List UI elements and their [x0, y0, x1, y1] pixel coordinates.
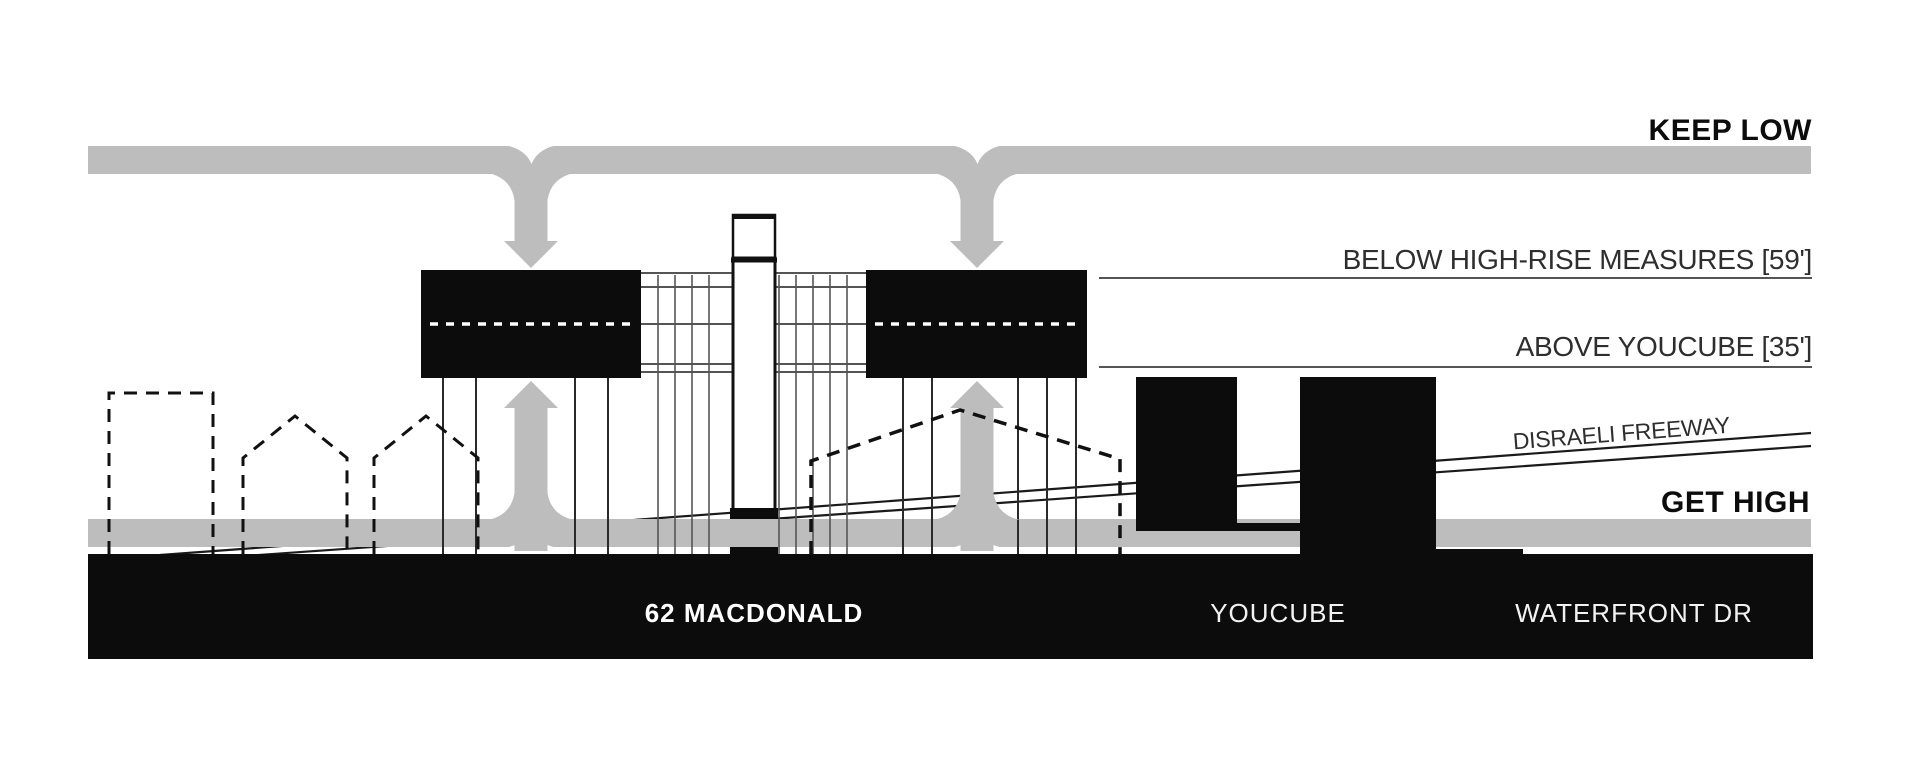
youcube-label: YOUCUBE [1210, 598, 1346, 628]
massing-block-left [421, 270, 641, 378]
above-youcube-label: ABOVE YOUCUBE [35'] [1516, 331, 1812, 362]
down-arrow-fillet-left [488, 173, 515, 200]
core-tower [730, 215, 778, 557]
youcube-tower-2 [1300, 377, 1436, 562]
site-label: 62 MACDONALD [645, 598, 864, 628]
waterfront-label: WATERFRONT DR [1515, 598, 1753, 628]
keep-low-band [88, 146, 1811, 174]
up-arrow-fillet-right [994, 493, 1021, 520]
massing-block-right [866, 270, 1087, 378]
down-arrow-fillet-right [994, 173, 1021, 200]
youcube-podium [1136, 523, 1300, 531]
massing-diagram: KEEP LOW BELOW HIGH-RISE MEASURES [59'] … [0, 0, 1920, 782]
core-tower-top-box [733, 215, 775, 258]
down-arrow-fillet-left [934, 173, 961, 200]
keep-low-label: KEEP LOW [1649, 114, 1813, 147]
below-high-rise-label: BELOW HIGH-RISE MEASURES [59'] [1343, 244, 1812, 275]
get-high-label: GET HIGH [1661, 486, 1810, 519]
youcube-tower-1 [1136, 377, 1237, 531]
up-arrow-fillet-right [548, 493, 575, 520]
up-arrow-fillet-left [488, 493, 515, 520]
diagram-svg: KEEP LOW BELOW HIGH-RISE MEASURES [59'] … [0, 0, 1920, 782]
down-arrow-fillet-right [548, 173, 575, 200]
